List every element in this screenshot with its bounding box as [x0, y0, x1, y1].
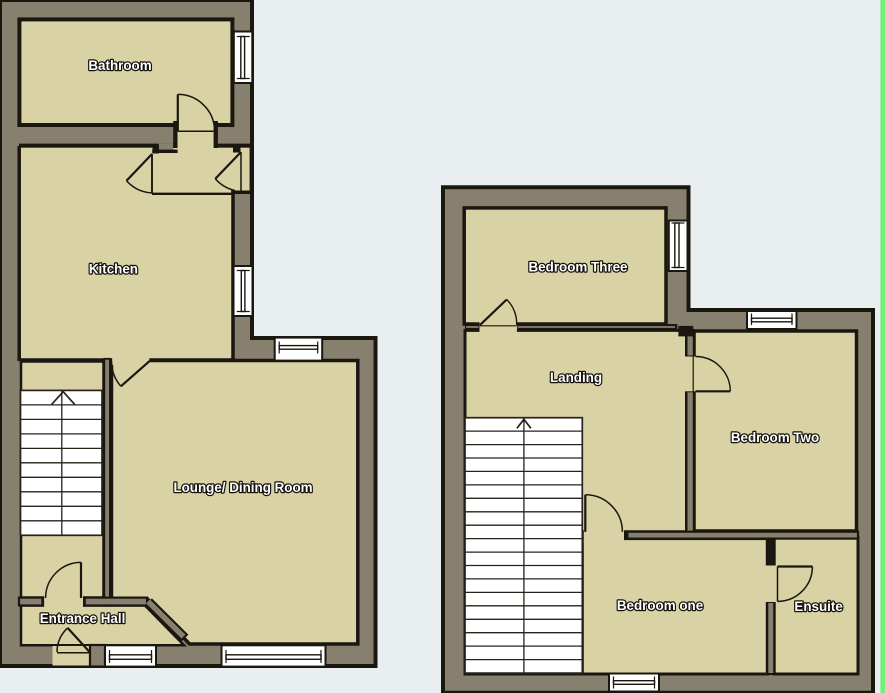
- svg-text:Bathroom: Bathroom: [88, 58, 151, 73]
- svg-text:Bedroom one: Bedroom one: [617, 598, 703, 613]
- svg-text:Bedroom Two: Bedroom Two: [731, 430, 819, 445]
- svg-text:Entrance Hall: Entrance Hall: [40, 611, 126, 626]
- svg-text:Bedroom Three: Bedroom Three: [529, 260, 628, 275]
- svg-text:Ensuite: Ensuite: [794, 599, 842, 614]
- svg-text:Landing: Landing: [550, 370, 602, 385]
- svg-text:Lounge/ Dining Room: Lounge/ Dining Room: [173, 480, 312, 495]
- svg-text:Kitchen: Kitchen: [89, 262, 138, 277]
